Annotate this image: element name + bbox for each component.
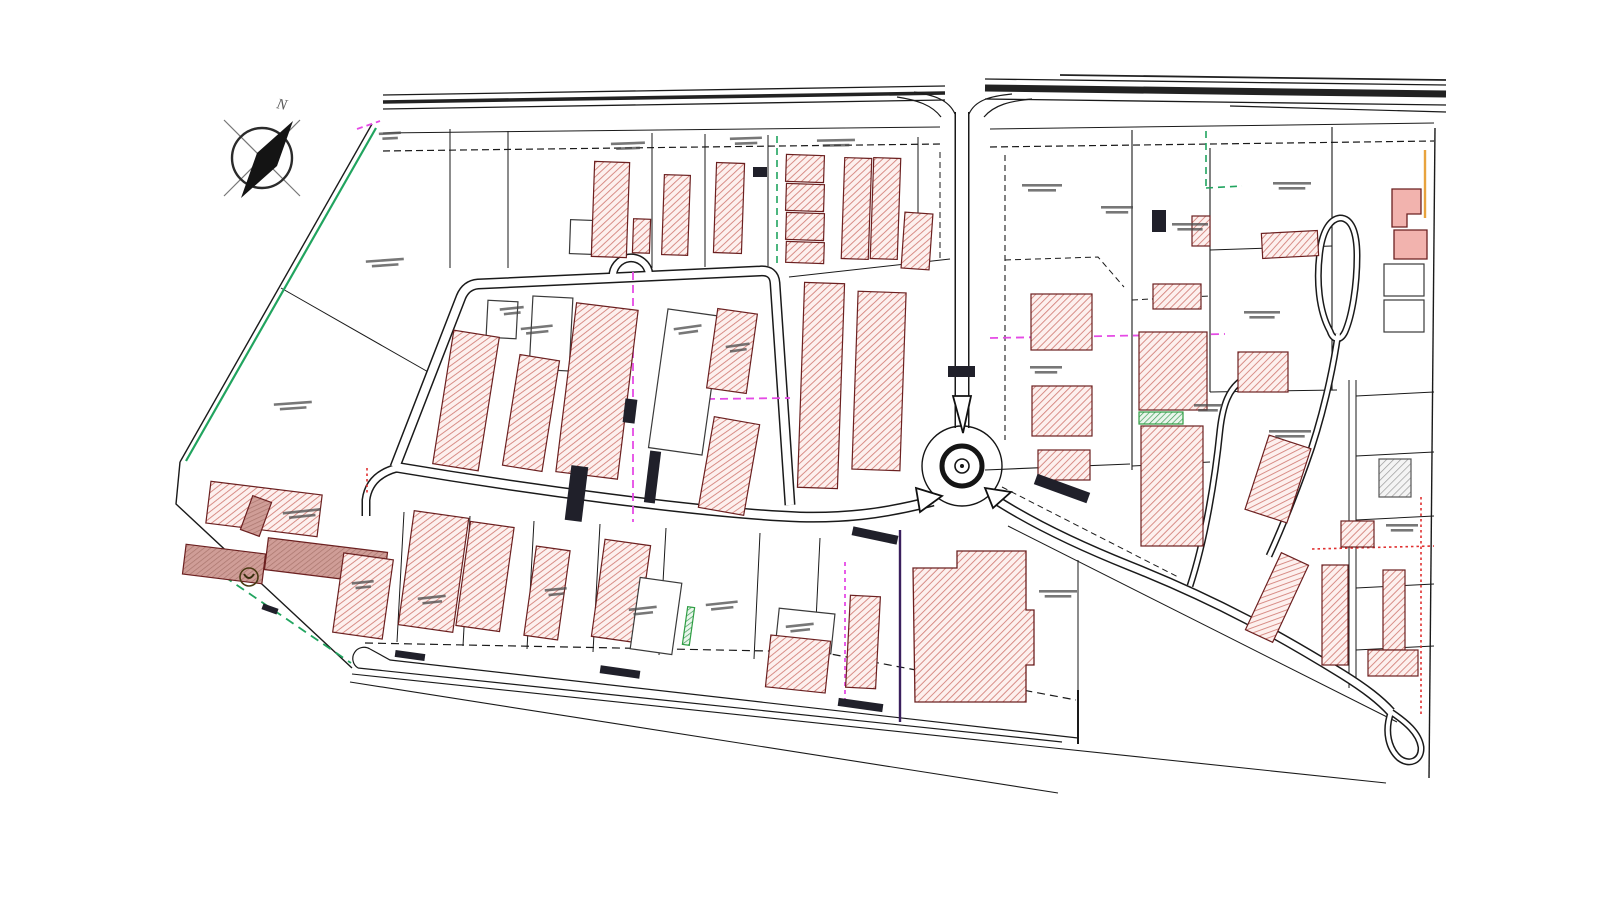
building-footprint [765,635,830,693]
dark-marking [852,526,899,544]
building-footprint [1139,412,1183,424]
label-smudge [274,401,312,411]
building-footprint [1238,352,1288,392]
building-footprint [1379,459,1411,497]
label-smudge [1273,182,1311,190]
building-footprint [1368,650,1418,676]
building-footprint [698,417,759,516]
label-smudge [611,141,645,150]
building-footprint [713,163,744,254]
boundary-line [352,674,1386,783]
building-footprint [913,551,1034,702]
building-footprint [1245,435,1311,523]
site-boundary [1429,128,1435,778]
building-footprint [786,183,825,211]
building-footprint [1141,426,1203,546]
highway-band [1060,75,1446,80]
label-smudge [1030,366,1062,374]
label-smudge [1386,524,1418,532]
building-footprint [182,544,265,584]
roundabout [916,396,1011,512]
boundary-line [985,99,1446,105]
boundary-line [1356,452,1434,456]
label-smudge [1101,206,1133,214]
building-footprint [1341,521,1374,547]
building-footprint [1245,553,1308,643]
building-footprint [1032,386,1092,436]
compass-rose: N [224,96,300,198]
building-footprint [1261,231,1318,259]
boundary-line [984,99,1032,117]
boundary-line [383,144,940,151]
boundary-line [1356,392,1434,396]
label-smudge [1039,590,1077,598]
label-smudge [817,139,855,147]
building-footprint [502,355,559,472]
building-footprint [1392,189,1421,227]
boundary-line [1230,106,1446,112]
building-footprint [1383,570,1405,650]
dark-marking [1152,210,1166,232]
traffic-island [916,488,942,512]
compass-n-label: N [274,96,289,114]
dark-marking [644,451,661,504]
label-smudge [1244,311,1280,319]
dark-marking [838,698,884,712]
building-footprint [786,212,825,240]
building-footprint [1038,450,1090,480]
boundary-line [990,141,1434,147]
highway-band [985,88,1446,94]
building-footprint [786,154,825,182]
green-dashed-boundary [1206,186,1242,188]
building-footprint [846,595,881,688]
building-footprint [786,241,825,263]
label-smudge [1022,184,1062,192]
road-surface [366,468,397,516]
road-casing [395,467,933,517]
building-footprint [1384,300,1424,332]
building-footprint [901,212,933,270]
green-boundary [186,128,376,461]
boundary-line [1005,257,1124,287]
building-footprint [682,607,694,646]
boundary-line [754,533,760,659]
label-smudge [1269,430,1311,438]
magenta-dashed-line [707,398,790,399]
building-footprint [333,553,394,639]
label-smudge [730,136,762,145]
building-footprint [841,158,872,260]
building-footprint [486,300,518,339]
dark-marking [395,650,426,661]
roundabout-ring [960,464,964,468]
label-smudge [366,258,404,268]
building-footprint [1384,264,1424,296]
building-footprint [870,158,901,260]
label-smudge [706,600,739,611]
boundary-line [990,123,1434,129]
building-footprint [797,282,844,488]
highway-band [383,93,945,102]
boundary-line [281,288,430,373]
site-plan-drawing: N [0,0,1600,900]
building-footprint [632,219,650,254]
label-smudge [379,131,401,140]
site-plan-canvas: N [0,0,1600,900]
building-footprint [1031,294,1092,350]
dark-marking [261,603,278,614]
boundary-line [1356,516,1434,520]
site-boundary [180,124,372,462]
dark-marking [948,366,975,377]
dark-marking [600,665,641,678]
building-footprint [852,291,906,471]
magenta-dashed-line [357,121,380,129]
building-footprint [1139,332,1207,410]
building-footprint [662,175,691,256]
building-footprint [1322,565,1348,665]
boundary-line [383,127,940,133]
building-footprint [1192,216,1210,246]
building-footprint [569,220,592,255]
dark-marking [753,167,767,177]
building-footprint [1394,230,1427,259]
strip-road-edge [353,647,370,668]
building-footprint [591,161,629,257]
building-footprint [1153,284,1201,309]
